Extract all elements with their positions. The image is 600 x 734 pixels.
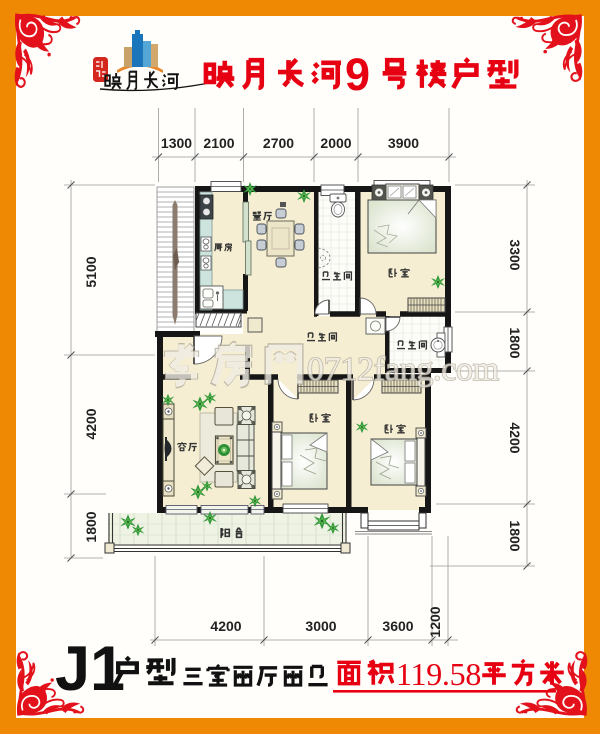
svg-text:5100: 5100 bbox=[83, 256, 99, 287]
svg-text:1800: 1800 bbox=[507, 327, 523, 358]
svg-text:9: 9 bbox=[345, 49, 370, 100]
svg-text:1800: 1800 bbox=[507, 520, 523, 551]
svg-text:2000: 2000 bbox=[320, 135, 351, 151]
svg-text:1200: 1200 bbox=[427, 606, 443, 637]
svg-text:2100: 2100 bbox=[203, 135, 234, 151]
svg-text:3600: 3600 bbox=[382, 618, 413, 634]
svg-text:4200: 4200 bbox=[83, 408, 99, 439]
svg-text:3000: 3000 bbox=[305, 618, 336, 634]
svg-text:4200: 4200 bbox=[507, 422, 523, 453]
svg-text:1300: 1300 bbox=[161, 135, 192, 151]
svg-text:3900: 3900 bbox=[388, 135, 419, 151]
svg-text:2700: 2700 bbox=[263, 135, 294, 151]
svg-text:4200: 4200 bbox=[210, 618, 241, 634]
svg-text:1800: 1800 bbox=[83, 511, 99, 542]
svg-text:3300: 3300 bbox=[507, 239, 523, 270]
svg-text:119.58: 119.58 bbox=[396, 656, 481, 692]
svg-text:0712fang.com: 0712fang.com bbox=[307, 351, 499, 388]
svg-text:J1: J1 bbox=[55, 634, 125, 704]
